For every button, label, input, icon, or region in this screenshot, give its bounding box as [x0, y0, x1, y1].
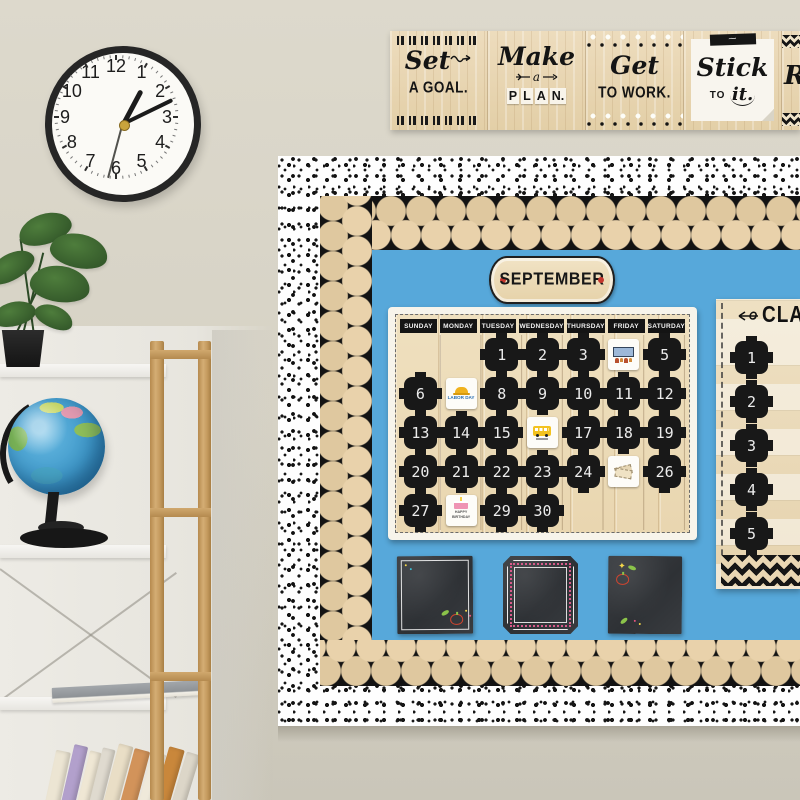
sticker-label: HAPPY BIRTHDAY	[446, 510, 477, 519]
calendar-cell: 27	[400, 491, 441, 530]
arrow-through-a: a	[488, 70, 585, 84]
clock-tick	[57, 97, 60, 99]
chart-number-tile: 2	[735, 385, 768, 418]
school-bus-sticker	[527, 417, 558, 448]
day-header: MONDAY	[440, 319, 477, 333]
clock-tick	[74, 71, 77, 74]
banner-panel-set-a-goal: Set A GOAL.	[390, 31, 488, 130]
clock-numeral: 8	[62, 132, 82, 154]
class-jobs-chart: CLA 12345	[716, 299, 800, 589]
arrow-head-icon	[542, 73, 558, 81]
plan-letter-chip: N.	[550, 88, 567, 104]
clock-tick	[70, 156, 73, 159]
clock-tick	[160, 156, 163, 159]
chalkboard-card	[503, 556, 578, 634]
clock-tick	[115, 174, 117, 179]
day-number-tile: 14	[445, 416, 478, 449]
day-number-tile: 13	[404, 416, 437, 449]
clock-tick	[59, 91, 62, 93]
banner-script-text: Make	[488, 44, 585, 69]
motivational-banner: Set A GOAL. Make a PLAN. Get TO WORK.	[390, 31, 800, 130]
chevron-trim	[721, 555, 800, 586]
clock-tick	[172, 135, 175, 137]
banner-panel-make-a-plan: Make a PLAN.	[488, 31, 586, 130]
bulletin-board: SEPTEMBER SUNDAYMONDAYTUESDAYWEDNESDAYTH…	[278, 156, 800, 726]
month-label: SEPTEMBER	[500, 270, 605, 290]
banner-word: Stick	[697, 53, 769, 82]
plant-pot	[0, 330, 46, 367]
banner-word: Make	[498, 42, 575, 71]
labor-day-sticker: LABOR DAY	[446, 378, 477, 409]
calendar-cell: 3	[563, 335, 604, 374]
tickets-sticker	[608, 456, 639, 487]
black-tape-decoration: ⁓	[709, 33, 755, 46]
chart-number-tile: 4	[735, 473, 768, 506]
banner-word: TO	[710, 90, 726, 101]
calendar-chart: SUNDAYMONDAYTUESDAYWEDNESDAYTHURSDAYFRID…	[388, 307, 697, 540]
squiggle-arrow-icon	[450, 54, 472, 63]
clock-numeral: 5	[132, 150, 152, 172]
clock-tick	[96, 58, 98, 61]
day-number-tile: 29	[485, 494, 518, 527]
clock-center-cap	[119, 120, 130, 131]
chart-number-tile: 1	[735, 341, 768, 374]
banner-panel-get-to-work: Get TO WORK.	[586, 31, 684, 130]
clock-tick	[174, 129, 177, 131]
day-number-tile: 9	[526, 377, 559, 410]
striped-tape-decoration	[397, 116, 480, 125]
clock-tick	[122, 176, 123, 179]
plan-letter-chip: A	[535, 88, 548, 104]
calendar-cell: 9	[522, 374, 563, 413]
shelf-rung	[150, 508, 211, 517]
calendar-cell	[604, 335, 645, 374]
plan-letter-chip: L	[521, 88, 533, 104]
chevron-tape-decoration	[782, 113, 800, 126]
calendar-cell	[604, 491, 645, 530]
calendar-cell: 1	[481, 335, 522, 374]
banner-panel-partial: R	[782, 31, 800, 130]
calendar-cell: 22	[481, 452, 522, 491]
calendar-cell: 23	[522, 452, 563, 491]
clock-tick	[96, 173, 98, 176]
calendar-cell: 5	[644, 335, 685, 374]
dot-tape-decoration	[586, 32, 683, 50]
day-number-tile: 22	[485, 455, 518, 488]
dotted-frame-decoration	[510, 563, 571, 627]
calendar-cell	[604, 452, 645, 491]
calendar-cell: 6	[400, 374, 441, 413]
day-header: SUNDAY	[400, 319, 437, 333]
day-number-tile: 19	[648, 416, 681, 449]
calendar-cell: 11	[604, 374, 645, 413]
calendar-cell: 14	[441, 413, 482, 452]
calendar-cell	[441, 335, 482, 374]
day-number-tile: 2	[526, 338, 559, 371]
day-number-tile: 3	[567, 338, 600, 371]
plan-letter-chip: P	[507, 88, 519, 104]
calendar-cell	[400, 335, 441, 374]
calendar-cell: 26	[644, 452, 685, 491]
banner-plan-chips: PLAN.	[488, 87, 585, 105]
clock-tick	[128, 175, 130, 178]
calendar-cell: 24	[563, 452, 604, 491]
calendar-cell: 8	[481, 374, 522, 413]
day-number-tile: 17	[567, 416, 600, 449]
calendar-cell: 2	[522, 335, 563, 374]
clock-tick	[55, 129, 58, 131]
clock-tick	[140, 171, 142, 174]
scallop-trim-top	[320, 196, 800, 250]
calendar-day-header-row: SUNDAYMONDAYTUESDAYWEDNESDAYTHURSDAYFRID…	[400, 319, 685, 333]
calendar-grid: 12356LABOR DAY89101112131415171819202122…	[400, 335, 685, 530]
caption-bar	[536, 438, 548, 440]
assembly-crowd-icon	[615, 358, 632, 363]
calendar-cell: 17	[563, 413, 604, 452]
day-number-tile: 27	[404, 494, 437, 527]
calendar-cell: 18	[604, 413, 645, 452]
chart-number-tile: 3	[735, 429, 768, 462]
day-number-tile: 20	[404, 455, 437, 488]
arrow-tail-icon	[515, 73, 531, 81]
calendar-cell: 12	[644, 374, 685, 413]
day-number-tile: 8	[485, 377, 518, 410]
calendar-cell: 10	[563, 374, 604, 413]
day-header: FRIDAY	[608, 319, 645, 333]
calendar-cell: 29	[481, 491, 522, 530]
scallop-trim-bottom	[320, 640, 800, 686]
day-header: THURSDAY	[567, 319, 605, 333]
day-number-tile: 6	[404, 377, 437, 410]
clock-tick	[70, 75, 73, 78]
day-number-tile: 24	[567, 455, 600, 488]
calendar-cell: 13	[400, 413, 441, 452]
banner-caps-text: TO WORK.	[586, 84, 683, 101]
calendar-cell: 21	[441, 452, 482, 491]
calendar-cell: 15	[481, 413, 522, 452]
clock-tick	[155, 161, 158, 164]
day-number-tile: 30	[526, 494, 559, 527]
calendar-inner: SUNDAYMONDAYTUESDAYWEDNESDAYTHURSDAYFRID…	[395, 314, 690, 533]
banner-word: Set	[405, 46, 451, 75]
day-header: SATURDAY	[648, 319, 685, 333]
banner-word: it.	[730, 84, 755, 106]
calendar-cell: 20	[400, 452, 441, 491]
clock-tick	[103, 56, 105, 59]
day-number-tile: 10	[567, 377, 600, 410]
chalk-leaf-doodle	[628, 565, 637, 571]
globe-stand-base	[20, 528, 108, 548]
striped-tape-decoration	[397, 36, 480, 45]
clock-numeral: 11	[81, 62, 101, 84]
clock-tick	[134, 58, 136, 61]
calendar-cell	[522, 413, 563, 452]
calendar-cell	[644, 491, 685, 530]
clock-numeral: 10	[62, 81, 82, 103]
chalk-apple-doodle	[450, 614, 463, 625]
classroom-wall-scene: 121234567891011 Set A GOAL. Make a PLAN.	[0, 0, 800, 800]
banner-partial-letter: R	[784, 61, 800, 91]
clock-tick	[109, 55, 110, 58]
chalkboard-card: ✦	[608, 556, 683, 635]
day-number-tile: 21	[445, 455, 478, 488]
shelf-post-back	[198, 341, 211, 800]
clock-tick	[170, 91, 173, 93]
shelf-rung	[150, 672, 211, 681]
calendar-cell: 19	[644, 413, 685, 452]
day-header: WEDNESDAY	[519, 319, 563, 333]
chalk-apple-doodle	[616, 574, 629, 585]
chalk-leaf-doodle	[620, 616, 628, 624]
banner-caps-text: A GOAL.	[390, 79, 487, 96]
clock-tick	[54, 116, 59, 118]
day-header: TUESDAY	[480, 319, 517, 333]
day-number-tile: 15	[485, 416, 518, 449]
board-surface: SEPTEMBER SUNDAYMONDAYTUESDAYWEDNESDAYTH…	[372, 250, 800, 640]
chevron-tape-decoration	[782, 35, 800, 48]
calendar-cell	[563, 491, 604, 530]
plant-leaf	[31, 299, 76, 335]
clock-tick	[160, 75, 163, 78]
banner-script-text: Stick	[684, 55, 781, 80]
board-drop-shadow	[278, 726, 800, 742]
clock-tick	[90, 171, 92, 174]
clock-tick	[134, 173, 136, 176]
day-number-tile: 5	[648, 338, 681, 371]
hard-hat-icon	[455, 387, 468, 394]
banner-word: Get	[610, 51, 659, 80]
clock-tick	[150, 67, 153, 70]
chalkboard-card	[397, 556, 474, 635]
day-number-tile: 12	[648, 377, 681, 410]
day-number-tile: 11	[607, 377, 640, 410]
day-number-tile: 18	[607, 416, 640, 449]
clock-tick	[122, 55, 123, 58]
clock-tick	[115, 55, 117, 60]
clock-tick	[170, 141, 173, 143]
day-number-tile: 1	[485, 338, 518, 371]
clock-tick	[173, 116, 178, 118]
sticker-label: LABOR DAY	[448, 395, 475, 401]
clock-tick	[128, 56, 130, 59]
clock-tick	[175, 110, 178, 111]
banner-panel-stick-to-it: ⁓ Stick TO it.	[684, 31, 782, 130]
banner-script-text: Set	[390, 48, 487, 73]
assembly-banner-icon	[613, 347, 634, 357]
clock-tick	[74, 161, 77, 164]
clock-tick	[174, 104, 177, 106]
shelf-post-front	[150, 341, 164, 800]
clock-numeral: 1	[132, 62, 152, 84]
chalk-star-doodle: ✦	[618, 562, 626, 571]
clock-tick	[57, 135, 60, 137]
birthday-cake-sticker: HAPPY BIRTHDAY	[446, 495, 477, 526]
banner-script-text: Get	[586, 53, 683, 78]
clock-tick	[155, 71, 158, 74]
chart-rows: 12345	[716, 299, 800, 589]
clock-tick	[103, 175, 105, 178]
globe	[8, 398, 105, 495]
day-number-tile: 23	[526, 455, 559, 488]
clock-numeral: 4	[150, 132, 170, 154]
dot-tape-decoration	[586, 111, 683, 129]
chart-number-tile: 5	[735, 517, 768, 550]
banner-word: a	[533, 70, 540, 84]
wall-clock: 121234567891011	[45, 46, 201, 202]
month-plaque: SEPTEMBER	[489, 256, 615, 304]
calendar-cell: HAPPY BIRTHDAY	[441, 491, 482, 530]
calendar-cell: 30	[522, 491, 563, 530]
wall-shadow	[212, 330, 274, 800]
day-number-tile: 26	[648, 455, 681, 488]
school-bus-icon	[533, 426, 551, 436]
assembly-sticker	[608, 339, 639, 370]
clock-tick	[55, 104, 58, 106]
banner-caps-text: TO it.	[684, 84, 781, 105]
chalk-leaf-doodle	[441, 609, 450, 616]
cake-icon	[454, 501, 468, 509]
shelf-rung	[150, 350, 211, 359]
calendar-cell: LABOR DAY	[441, 374, 482, 413]
scallop-trim-left	[320, 196, 372, 686]
